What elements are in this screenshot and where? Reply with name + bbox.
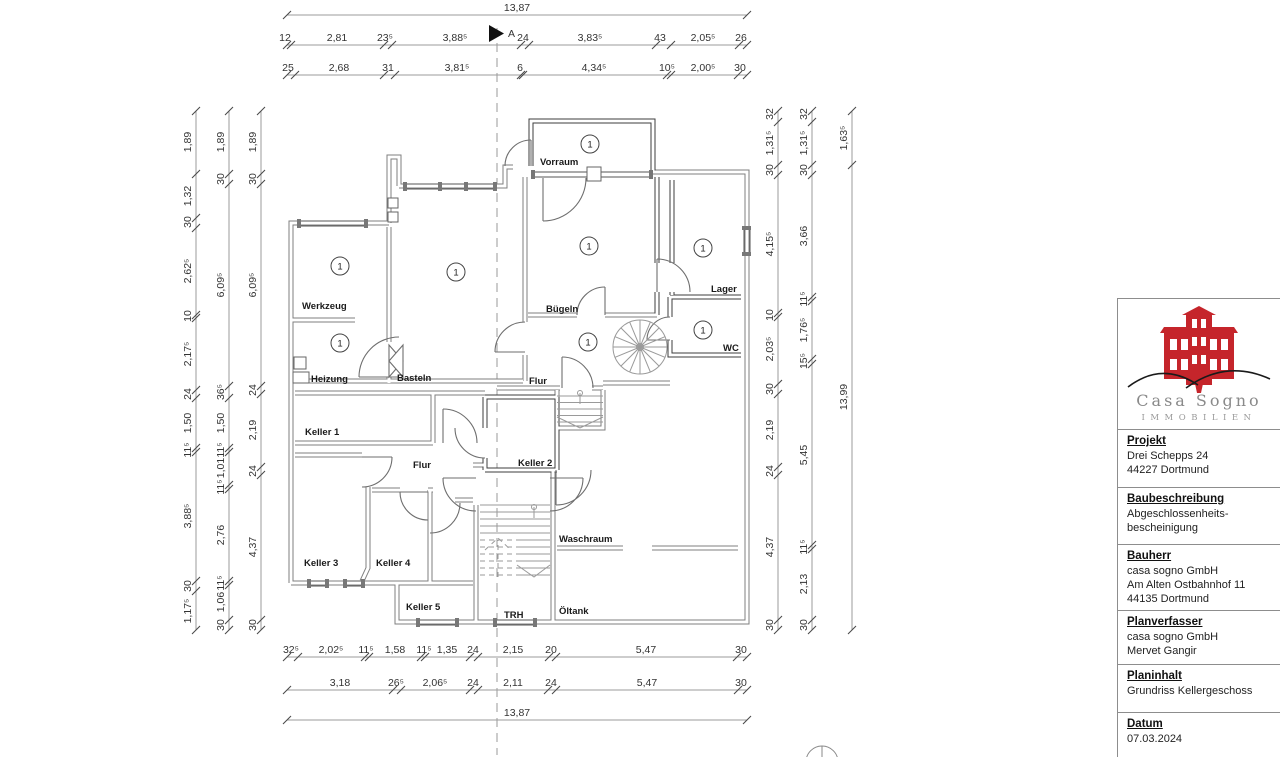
titleblock-section-bauherr: Bauherrcasa sogno GmbHAm Alten Ostbahnho…	[1118, 544, 1280, 610]
dim-label: 2,06⁵	[423, 677, 448, 689]
dim-label: 43	[654, 32, 666, 44]
door-arc	[400, 492, 428, 520]
dim-label: 1,06	[215, 592, 227, 613]
wall	[291, 223, 389, 583]
dim-label: 2,03⁵	[764, 337, 776, 362]
titleblock-line: Am Alten Ostbahnhof 11	[1127, 578, 1274, 592]
unit-number-badge: 1	[694, 239, 712, 257]
dim-chain-top-overall: 13,87	[283, 2, 751, 19]
titleblock-line: casa sogno GmbH	[1127, 564, 1274, 578]
titleblock-line: casa sogno GmbH	[1127, 630, 1274, 644]
room-label: Keller 1	[305, 427, 340, 438]
dim-label: 3,88⁵	[443, 32, 468, 44]
dim-label: 15⁵	[798, 353, 810, 369]
door-arc	[362, 457, 392, 487]
door-arc	[430, 503, 460, 533]
dim-label: 1,50	[182, 413, 194, 434]
dim-label: 1,31⁵	[764, 131, 776, 156]
dim-label: 6,09⁵	[247, 273, 259, 298]
spiral-stair	[613, 320, 667, 374]
svg-text:1: 1	[700, 244, 705, 255]
room-label: Werkzeug	[302, 301, 347, 312]
dim-label: 11⁵	[358, 644, 373, 656]
titleblock: Casa Sogno IMMOBILIEN ProjektDrei Schepp…	[1117, 298, 1280, 757]
dim-label: 24	[247, 384, 259, 396]
dim-label: 24	[764, 465, 776, 477]
dim-label: 30	[764, 164, 776, 176]
room-label: Öltank	[559, 606, 589, 617]
floorplan-drawing: A 13,87122,8123⁵3,88⁵243,83⁵432,05⁵26252…	[0, 0, 1280, 757]
dim-label: 30	[247, 173, 259, 185]
dim-label: 30	[735, 644, 747, 656]
dim-label: 30	[735, 677, 747, 689]
wall-core	[362, 487, 368, 581]
svg-text:1: 1	[700, 326, 705, 337]
titleblock-section-planinhalt: PlaninhaltGrundriss Kellergeschoss	[1118, 664, 1280, 712]
dim-label: 24	[467, 677, 479, 689]
dim-label: 1,31⁵	[798, 131, 810, 156]
dim-label: 13,87	[504, 2, 530, 14]
room-label: Keller 2	[518, 458, 552, 469]
orientation-symbol	[806, 746, 838, 757]
room-label: Keller 5	[406, 602, 441, 613]
dim-label: 11⁵	[215, 575, 227, 590]
dim-label: 26⁵	[388, 677, 404, 689]
door-arc	[562, 357, 593, 388]
dim-label: 26	[735, 32, 747, 44]
dim-chain-right-col1: 321,31⁵304,15⁵102,03⁵302,19244,3730	[764, 107, 782, 634]
dim-chain-left-col3: 1,89306,09⁵242,19244,3730	[247, 107, 265, 634]
door-arc	[495, 322, 525, 352]
titleblock-section-planverfasser: Planverfassercasa sogno GmbHMervet Gangi…	[1118, 610, 1280, 664]
trh-stair	[480, 505, 550, 578]
room-label: WC	[723, 343, 739, 354]
dim-chain-top-row3: 252,68313,81⁵64,34⁵10⁵2,00⁵30	[282, 62, 751, 79]
titleblock-line: 44227 Dortmund	[1127, 463, 1274, 477]
dim-chain-left-col1: 1,891,32302,62⁵102,17⁵241,5011⁵3,88⁵301,…	[182, 107, 200, 634]
logo-subtitle-text: IMMOBILIEN	[1142, 413, 1257, 423]
dim-chain-right-col2: 321,31⁵303,6611⁵1,76⁵15⁵5,4511⁵2,1330	[798, 107, 816, 634]
titleblock-heading: Bauherr	[1127, 550, 1274, 562]
door-arc	[543, 178, 586, 221]
titleblock-section-datum: Datum07.03.2024	[1118, 712, 1280, 757]
unit-number-badge: 1	[581, 135, 599, 153]
dim-label: 30	[764, 619, 776, 631]
room-label: Bügeln	[546, 304, 578, 315]
dim-label: 3,18	[330, 677, 351, 689]
dim-label: 1,63⁵	[838, 126, 850, 151]
dim-label: 4,37	[764, 537, 776, 558]
dim-label: 24	[467, 644, 479, 656]
dim-label: 30	[182, 580, 194, 592]
dim-chain-bottom-overall: 13,87	[283, 707, 751, 724]
dim-label: 5,45	[798, 445, 810, 466]
door-arc	[505, 140, 531, 166]
dim-label: 24	[182, 388, 194, 400]
dim-label: 4,15⁵	[764, 232, 776, 257]
dim-label: 2,02⁵	[319, 644, 344, 656]
dim-label: 6,09⁵	[215, 273, 227, 298]
dim-chain-bottom-row1: 32⁵2,02⁵11⁵1,5811⁵1,35242,15205,4730	[283, 644, 751, 661]
floorplan-sheet: A 13,87122,8123⁵3,88⁵243,83⁵432,05⁵26252…	[0, 0, 1280, 757]
dim-label: 1,89	[182, 132, 194, 153]
dim-chain-bottom-row2: 3,1826⁵2,06⁵242,11245,4730	[283, 677, 751, 694]
room-label: Flur	[413, 460, 431, 471]
dim-label: 30	[247, 619, 259, 631]
dim-label: 1,35	[437, 644, 458, 656]
dim-chain-left-col2: 1,89306,09⁵36⁵1,5011⁵1,0111⁵2,7611⁵1,063…	[215, 107, 233, 634]
titleblock-line: Drei Schepps 24	[1127, 449, 1274, 463]
dim-label: 2,11	[503, 677, 523, 689]
svg-text:1: 1	[587, 140, 592, 151]
dim-label: 4,34⁵	[582, 62, 607, 74]
dim-label: 13,87	[504, 707, 530, 719]
titleblock-section-projekt: ProjektDrei Schepps 2444227 Dortmund	[1118, 429, 1280, 487]
dim-label: 1,58	[385, 644, 406, 656]
dim-label: 11⁵	[215, 442, 227, 457]
unit-number-badge: 1	[331, 257, 349, 275]
dim-label: 30	[215, 619, 227, 631]
dim-label: 2,19	[247, 420, 259, 441]
room-label: Basteln	[397, 373, 432, 384]
room-label: Vorraum	[540, 157, 578, 168]
room-label: Keller 3	[304, 558, 338, 569]
titleblock-heading: Planinhalt	[1127, 670, 1274, 682]
window-glazing-vorraum	[531, 167, 653, 181]
svg-text:1: 1	[337, 262, 342, 273]
titleblock-line: Grundriss Kellergeschoss	[1127, 684, 1274, 698]
dim-label: 6	[517, 62, 523, 74]
dim-label: 1,01	[215, 458, 227, 479]
room-label: Lager	[711, 284, 737, 295]
dim-label: 5,47	[637, 677, 658, 689]
svg-text:1: 1	[337, 339, 342, 350]
dim-label: 36⁵	[215, 384, 227, 400]
dim-label: 1,32	[182, 186, 194, 207]
dim-label: 2,00⁵	[691, 62, 716, 74]
dim-label: 25	[282, 62, 294, 74]
dim-label: 5,47	[636, 644, 657, 656]
room-label: Heizung	[311, 374, 348, 385]
dim-label: 1,50	[215, 413, 227, 434]
dim-chain-top-row2: 122,8123⁵3,88⁵243,83⁵432,05⁵26	[279, 32, 751, 49]
dim-label: 20	[545, 644, 557, 656]
titleblock-line: Abgeschlossenheits-	[1127, 507, 1274, 521]
dim-label: 10	[764, 309, 776, 321]
door-arc	[577, 287, 605, 315]
dim-label: 11⁵	[416, 644, 431, 656]
dim-label: 2,05⁵	[691, 32, 716, 44]
company-logo: Casa Sogno IMMOBILIEN	[1118, 299, 1280, 429]
door-arc	[657, 259, 690, 292]
titleblock-heading: Projekt	[1127, 435, 1274, 447]
dim-label: 1,76⁵	[798, 318, 810, 343]
dim-label: 30	[798, 164, 810, 176]
dim-label: 10⁵	[659, 62, 675, 74]
dim-label: 30	[182, 216, 194, 228]
dim-label: 3,83⁵	[578, 32, 603, 44]
dim-label: 30	[734, 62, 746, 74]
dim-label: 3,66	[798, 226, 810, 247]
room-label: Keller 4	[376, 558, 411, 569]
titleblock-line: 44135 Dortmund	[1127, 592, 1274, 606]
titleblock-line: bescheinigung	[1127, 521, 1274, 535]
logo-building-icon	[1128, 306, 1270, 393]
dim-label: 2,76	[215, 525, 227, 546]
dim-label: 1,89	[215, 132, 227, 153]
dim-label: 32	[764, 108, 776, 120]
unit-number-badge: 1	[694, 321, 712, 339]
dim-label: 2,13	[798, 574, 810, 595]
dim-label: 3,81⁵	[445, 62, 470, 74]
dim-label: 23⁵	[377, 32, 393, 44]
dim-label: 24	[247, 465, 259, 477]
titleblock-heading: Datum	[1127, 718, 1274, 730]
dim-label: 3,88⁵	[182, 504, 194, 529]
dim-label: 12	[279, 32, 291, 44]
section-marker-label: A	[508, 28, 515, 40]
unit-number-badge: 1	[447, 263, 465, 281]
dim-label: 31	[382, 62, 394, 74]
dim-label: 11⁵	[798, 291, 810, 306]
door-arc	[443, 409, 477, 443]
dim-label: 2,15	[503, 644, 524, 656]
titleblock-heading: Baubeschreibung	[1127, 493, 1274, 505]
dim-label: 30	[798, 619, 810, 631]
dim-label: 2,68	[329, 62, 350, 74]
room-label: Waschraum	[559, 534, 613, 545]
logo-brand-text: Casa Sogno	[1136, 391, 1261, 410]
dim-label: 13,99	[838, 384, 850, 410]
svg-text:1: 1	[453, 268, 458, 279]
dim-label: 30	[764, 383, 776, 395]
dim-label: 4,37	[247, 537, 259, 558]
unit-number-badge: 1	[580, 237, 598, 255]
dim-label: 24	[545, 677, 557, 689]
straight-stair	[557, 391, 603, 429]
room-label: Flur	[529, 376, 547, 387]
door-arc	[455, 428, 485, 458]
dim-label: 30	[215, 173, 227, 185]
dim-label: 24	[517, 32, 529, 44]
titleblock-heading: Planverfasser	[1127, 616, 1274, 628]
dim-label: 32	[798, 108, 810, 120]
dim-label: 11⁵	[798, 539, 810, 554]
dim-label: 1,89	[247, 132, 259, 153]
dim-label: 1,17⁵	[182, 599, 194, 624]
dim-label: 11⁵	[182, 442, 194, 457]
dim-label: 2,81	[327, 32, 348, 44]
section-marker: A	[489, 25, 515, 42]
door-arc	[556, 470, 591, 505]
dim-label: 2,62⁵	[182, 259, 194, 284]
titleblock-line: Mervet Gangir	[1127, 644, 1274, 658]
svg-text:1: 1	[585, 338, 590, 349]
wall-core	[291, 223, 389, 583]
dim-label: 2,19	[764, 420, 776, 441]
titleblock-line: 07.03.2024	[1127, 732, 1274, 746]
dim-label: 10	[182, 310, 194, 322]
dim-label: 11⁵	[215, 479, 227, 494]
dim-chain-right-col3: 1,63⁵13,99	[838, 107, 856, 634]
dim-label: 32⁵	[283, 644, 299, 656]
dim-label: 2,17⁵	[182, 342, 194, 367]
unit-number-badge: 1	[579, 333, 597, 351]
titleblock-section-baubeschreibung: BaubeschreibungAbgeschlossenheits-besche…	[1118, 487, 1280, 544]
svg-text:1: 1	[586, 242, 591, 253]
unit-number-badge: 1	[331, 334, 349, 352]
door-arc	[443, 478, 476, 511]
room-label: TRH	[504, 610, 524, 621]
